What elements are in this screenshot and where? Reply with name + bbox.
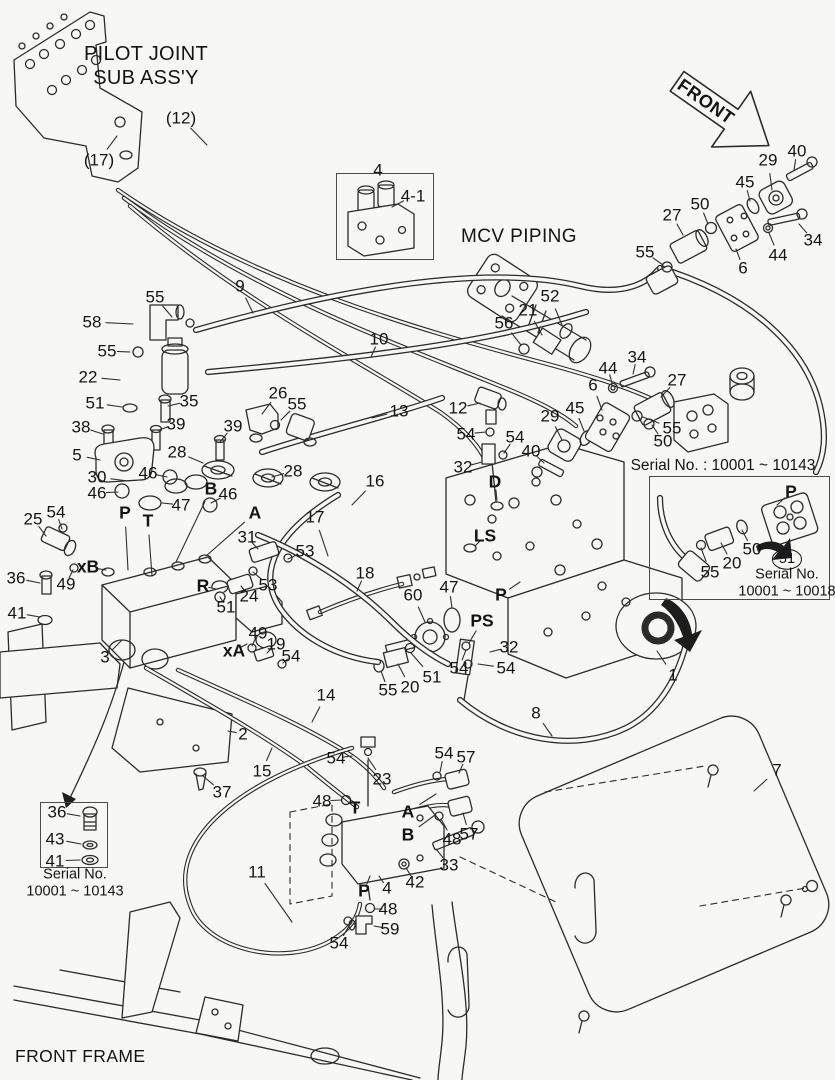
part-callout-24: 24 xyxy=(240,588,259,605)
part-callout-59: 59 xyxy=(381,921,400,938)
part-callout-46: 46 xyxy=(88,485,107,502)
part-callout-51: 51 xyxy=(217,599,236,616)
part-callout-38: 38 xyxy=(72,419,91,436)
part-callout-4: 4 xyxy=(373,162,382,179)
part-callout-33: 33 xyxy=(440,857,459,874)
part-callout-53: 53 xyxy=(259,577,278,594)
part-callout-39: 39 xyxy=(167,416,186,433)
part-callout-29: 29 xyxy=(759,152,778,169)
part-callout-15: 15 xyxy=(253,763,272,780)
part-callout-45: 45 xyxy=(736,174,755,191)
part-callout-4-1: 4-1 xyxy=(401,188,426,205)
part-callout-51: 51 xyxy=(423,669,442,686)
part-callout-ps: PS xyxy=(470,612,493,630)
part-callout-17: 17 xyxy=(306,509,325,526)
part-callout-32: 32 xyxy=(454,459,473,476)
part-callout-1: 1 xyxy=(668,667,677,684)
part-callout-41: 41 xyxy=(46,853,65,870)
part-callout-40: 40 xyxy=(788,143,807,160)
part-callout-p: P xyxy=(358,882,370,900)
part-callout-23: 23 xyxy=(373,771,392,788)
part-callout-55: 55 xyxy=(379,682,398,699)
part-callout-55: 55 xyxy=(98,343,117,360)
part-callout-14: 14 xyxy=(317,687,336,704)
part-callout-29: 29 xyxy=(541,408,560,425)
part-callout-51: 51 xyxy=(772,549,802,570)
part-callout-b: B xyxy=(205,480,218,498)
part-callout-41: 41 xyxy=(8,605,27,622)
part-callout-t: T xyxy=(143,512,154,530)
part-callout-16: 16 xyxy=(366,473,385,490)
part-callout-21: 21 xyxy=(519,302,538,319)
part-callout-p: P xyxy=(119,504,131,522)
part-callout-48: 48 xyxy=(379,901,398,918)
part-callout-p: P xyxy=(495,586,507,604)
part-callout-54: 54 xyxy=(435,745,454,762)
part-callout-54: 54 xyxy=(497,660,516,677)
part-callout-a: A xyxy=(402,803,415,821)
part-callout-55: 55 xyxy=(288,396,307,413)
part-callout-48: 48 xyxy=(313,793,332,810)
part-callout-32: 32 xyxy=(500,639,519,656)
part-callout-47: 47 xyxy=(172,497,191,514)
part-callout-58: 58 xyxy=(83,314,102,331)
part-callout-34: 34 xyxy=(804,232,823,249)
part-callout-b: B xyxy=(402,826,415,844)
part-callout-22: 22 xyxy=(79,369,98,386)
part-callout-46: 46 xyxy=(139,465,158,482)
part-callout-20: 20 xyxy=(401,679,420,696)
part-callout-42: 42 xyxy=(406,874,425,891)
callout-layer: (12)(17)44-19555855221051351338393926555… xyxy=(0,0,835,1080)
part-callout-54: 54 xyxy=(330,935,349,952)
part-callout-7: 7 xyxy=(772,762,781,779)
part-callout-r: R xyxy=(197,577,210,595)
part-callout-54: 54 xyxy=(327,750,346,767)
part-callout-13: 13 xyxy=(390,403,409,420)
part-callout-4: 4 xyxy=(382,880,391,897)
part-callout-54: 54 xyxy=(457,426,476,443)
part-callout-20: 20 xyxy=(723,555,742,572)
part-callout-36: 36 xyxy=(7,570,26,587)
part-callout-55: 55 xyxy=(701,564,720,581)
part-callout-40: 40 xyxy=(522,443,541,460)
part-callout-6: 6 xyxy=(588,377,597,394)
part-callout-44: 44 xyxy=(769,247,788,264)
part-callout-57: 57 xyxy=(460,826,479,843)
part-callout-2: 2 xyxy=(238,726,247,743)
part-callout-51: 51 xyxy=(86,395,105,412)
part-callout-36: 36 xyxy=(48,804,67,821)
part-callout-45: 45 xyxy=(566,400,585,417)
parts-diagram-page: FRONT PILOT JOINT SUB ASS'Y MCV PIPING F… xyxy=(0,0,835,1080)
part-callout-54: 54 xyxy=(282,648,301,665)
part-callout-47: 47 xyxy=(440,579,459,596)
part-callout-a: A xyxy=(249,504,262,522)
part-callout-60: 60 xyxy=(404,587,423,604)
part-callout-27: 27 xyxy=(663,207,682,224)
part-callout-xb: xB xyxy=(77,558,99,576)
part-callout-28: 28 xyxy=(284,463,303,480)
part-callout-55: 55 xyxy=(146,289,165,306)
part-callout-39: 39 xyxy=(224,418,243,435)
part-callout-53: 53 xyxy=(296,543,315,560)
part-callout-49: 49 xyxy=(57,576,76,593)
part-callout-10: 10 xyxy=(370,331,389,348)
part-callout-54: 54 xyxy=(47,504,66,521)
part-callout-8: 8 xyxy=(531,705,540,722)
part-callout-50: 50 xyxy=(743,541,762,558)
part-callout-xa: xA xyxy=(223,642,245,660)
part-callout-27: 27 xyxy=(668,372,687,389)
part-callout-50: 50 xyxy=(691,196,710,213)
part-callout-46: 46 xyxy=(219,486,238,503)
part-callout-26: 26 xyxy=(269,385,288,402)
part-callout-52: 52 xyxy=(541,288,560,305)
part-callout-55: 55 xyxy=(636,244,655,261)
part-callout-57: 57 xyxy=(457,749,476,766)
part-callout-5: 5 xyxy=(72,447,81,464)
part-callout-49: 49 xyxy=(249,625,268,642)
part-callout-37: 37 xyxy=(213,784,232,801)
part-callout-d: D xyxy=(489,473,502,491)
part-callout-43: 43 xyxy=(46,831,65,848)
part-callout-28: 28 xyxy=(168,444,187,461)
part-callout-3: 3 xyxy=(100,649,109,666)
part-callout-9: 9 xyxy=(235,278,244,295)
part-callout-44: 44 xyxy=(599,360,618,377)
part-callout-ls: LS xyxy=(474,527,496,545)
part-callout-25: 25 xyxy=(24,511,43,528)
part-callout-t: T xyxy=(350,799,361,817)
part-callout-18: 18 xyxy=(356,565,375,582)
part-callout-p: P xyxy=(785,483,797,501)
part-callout-6: 6 xyxy=(738,260,747,277)
part-callout-12: 12 xyxy=(449,400,468,417)
part-callout-56: 56 xyxy=(495,315,514,332)
part-callout-31: 31 xyxy=(238,529,257,546)
part-callout-17: (17) xyxy=(84,152,114,169)
part-callout-50: 50 xyxy=(654,433,673,450)
part-callout-54: 54 xyxy=(450,660,469,677)
part-callout-34: 34 xyxy=(628,349,647,366)
part-callout-11: 11 xyxy=(248,864,266,881)
part-callout-35: 35 xyxy=(180,393,199,410)
part-callout-12: (12) xyxy=(166,110,196,127)
